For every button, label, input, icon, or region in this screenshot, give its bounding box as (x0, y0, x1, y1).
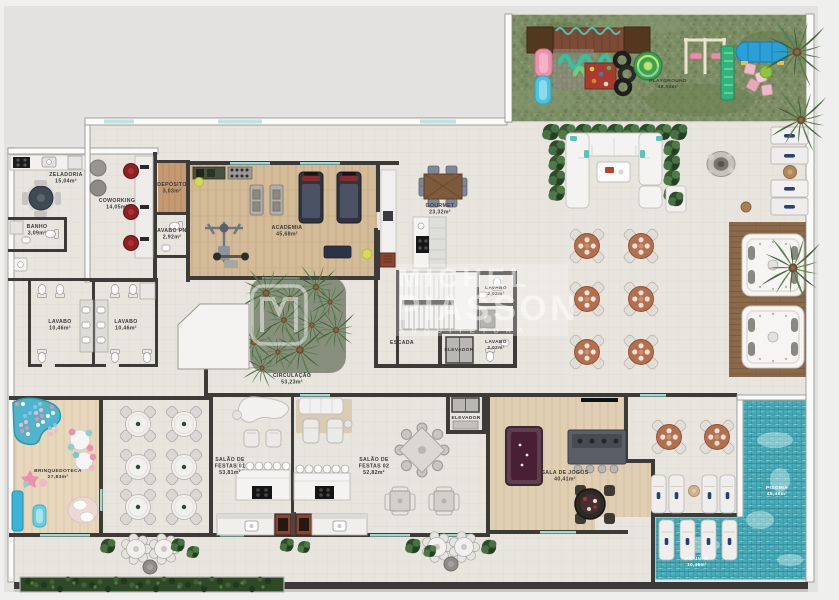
svg-text:SALÃO DEFESTAS 0252,82m²: SALÃO DEFESTAS 0252,82m² (359, 456, 389, 476)
svg-text:PIASSON: PIASSON (397, 289, 579, 328)
svg-text:ELEVADOR: ELEVADOR (451, 415, 480, 421)
svg-text:ARQUITETURA: ARQUITETURA (399, 326, 531, 335)
svg-text:LAVABO10,46m²: LAVABO10,46m² (48, 319, 71, 331)
svg-text:ACADEMIA45,68m²: ACADEMIA45,68m² (272, 225, 303, 237)
svg-text:GOURMET23,32m²: GOURMET23,32m² (426, 203, 455, 215)
svg-text:ELEVADOR: ELEVADOR (444, 347, 473, 353)
svg-text:SALÃO DEFESTAS 0153,81m²: SALÃO DEFESTAS 0153,81m² (215, 456, 245, 476)
svg-text:BANHO3,09m²: BANHO3,09m² (27, 224, 48, 236)
svg-text:ESCADA: ESCADA (390, 340, 414, 346)
svg-text:PRAINHA10,46m²: PRAINHA10,46m² (685, 556, 709, 567)
svg-text:LAVABO10,46m²: LAVABO10,46m² (114, 319, 137, 331)
